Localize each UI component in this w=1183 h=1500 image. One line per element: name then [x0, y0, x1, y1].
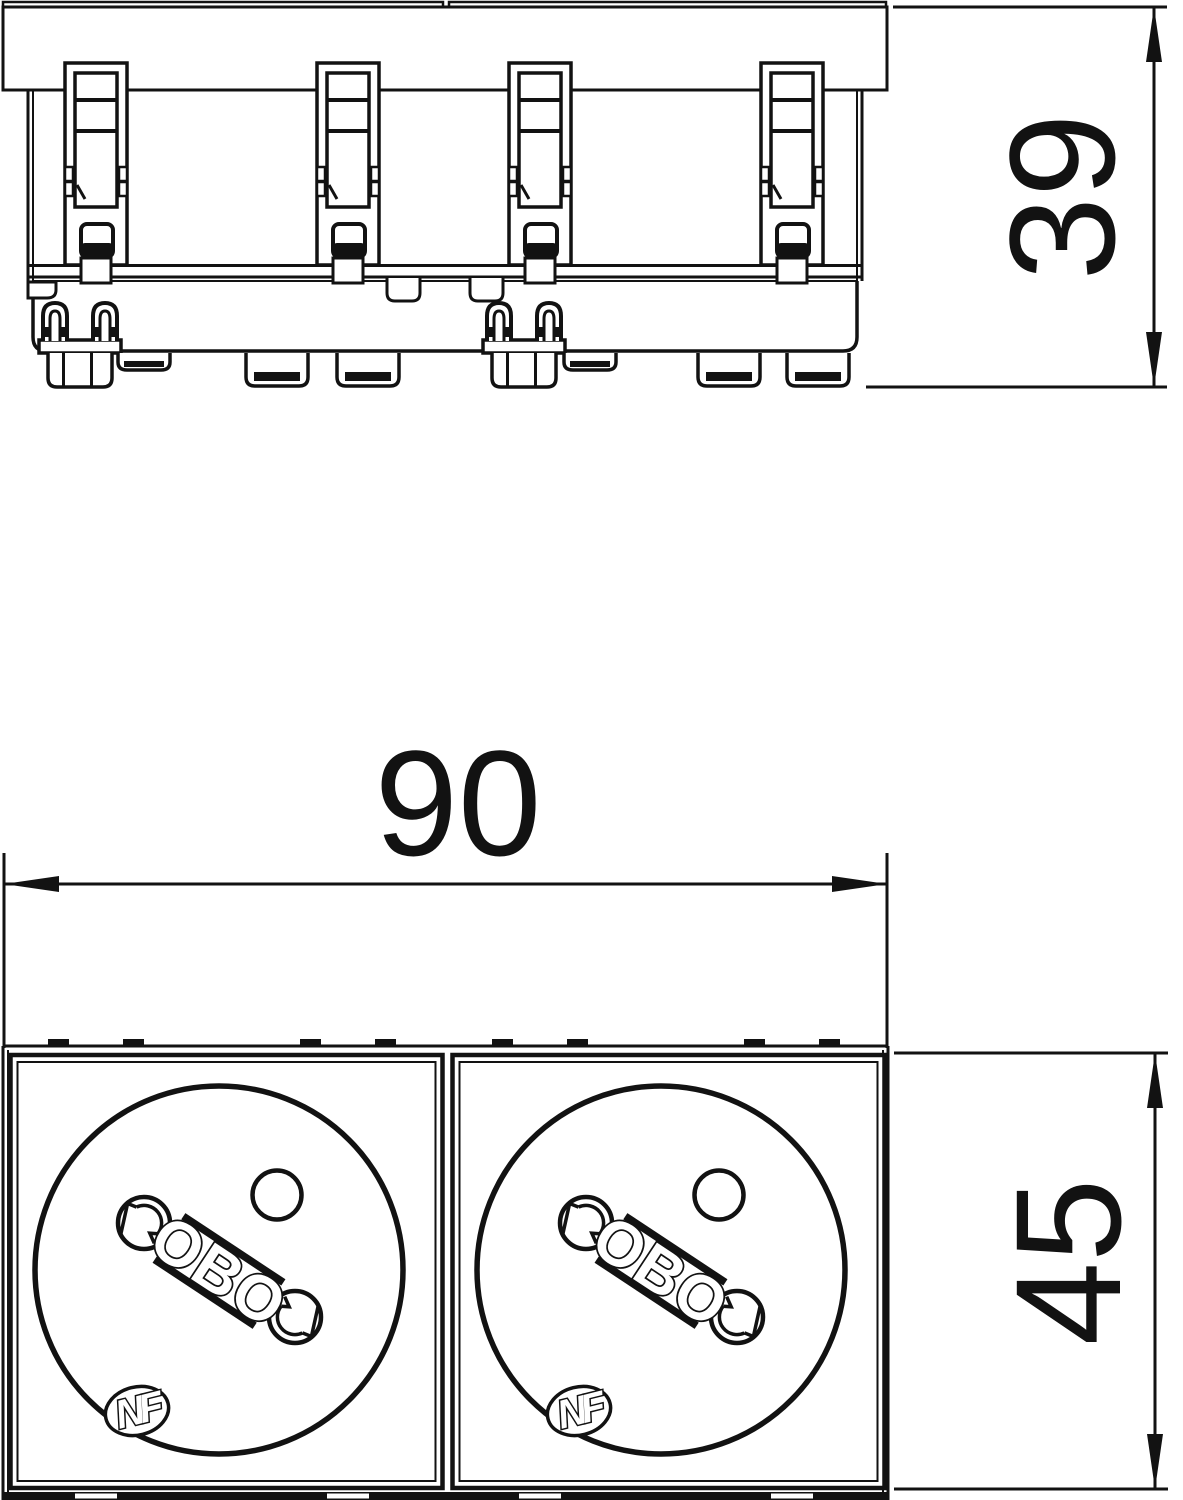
side-latch: [28, 282, 56, 298]
dimension-45-label: 45: [984, 1179, 1152, 1346]
mounting-clip-2: [317, 63, 379, 283]
dimension-39-label: 39: [978, 114, 1146, 281]
front-plate: [3, 7, 887, 90]
mounting-clip-3: [509, 63, 571, 283]
dimension-90-label: 90: [375, 719, 542, 887]
technical-drawing-canvas: OBO NF: [0, 0, 1183, 1500]
mounting-clip-4: [761, 63, 823, 283]
hanging-tab: [387, 278, 420, 301]
bottom-clip-band: [3, 1492, 888, 1500]
socket-module-right: [453, 1055, 885, 1488]
hanging-tab: [470, 278, 503, 301]
socket-module-left: [11, 1055, 443, 1488]
mounting-clip-1: [65, 63, 127, 283]
